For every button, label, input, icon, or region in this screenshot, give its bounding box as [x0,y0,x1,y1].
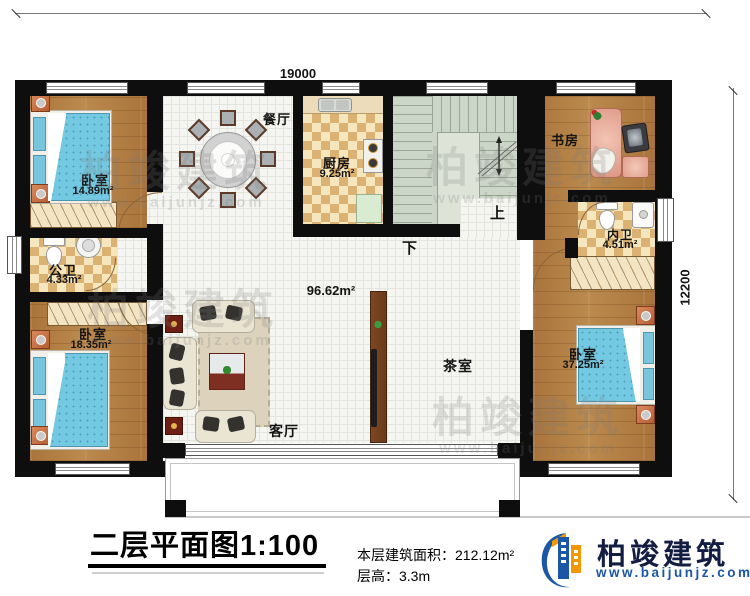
bathroom-sink-basin [82,239,95,252]
floor-area-value: 212.12m² [455,547,514,563]
monitor-screen [627,128,643,147]
stove-burner [368,158,378,168]
desk-plant [590,108,605,124]
window [322,82,360,94]
stove-burner [368,143,378,153]
bedroom-tl-area: 14.89m² [62,185,124,197]
dining-chair [179,151,195,167]
floor-plan-canvas: 19000 12200 上 下 [0,0,750,596]
window [556,82,636,94]
sofa-cushion [169,367,185,385]
wall-outer-right [655,80,672,477]
balcony-guide-line [165,516,750,518]
cabinet-plant [372,318,384,331]
top-dimension-line [15,13,707,14]
floor-area-info: 本层建筑面积：212.12m² [357,545,514,565]
balcony [165,458,520,517]
nightstand [31,330,50,349]
dining-name: 餐厅 [250,109,304,128]
bedroom-br-area: 37.25m² [552,359,614,371]
wall-interior [147,324,163,461]
study-name: 书房 [538,130,592,149]
bedroom-bl-area: 18.35m² [60,339,122,351]
title-underline-light [92,572,324,574]
sofa-cushion [202,416,220,432]
dining-chair [260,151,276,167]
nightstand [636,306,655,325]
sofa-cushion [199,305,217,322]
floor-height-value: 3.3m [399,568,430,584]
wall-study-bath [568,190,655,202]
bed-bl-pillow [33,357,46,395]
dining-chair [220,192,236,208]
refrigerator [356,194,382,223]
floor-height-label: 层高： [357,568,399,584]
stair-direction-arrow [470,134,520,178]
balcony-post [165,500,186,517]
tv-screen [371,349,377,427]
window [187,82,265,94]
wall-outer-left [15,80,30,477]
dining-chair [220,110,236,126]
sliding-door-window [185,444,498,456]
public-bath-area: 4.33m² [38,274,90,286]
window [548,463,640,475]
nightstand [636,405,655,424]
window [657,198,674,242]
wall-balcony-stub [498,443,520,458]
side-table-knob [171,321,177,327]
bed-br-sheet [622,328,640,402]
stair-flight-top [432,96,517,132]
wall-interior [147,96,163,192]
stairs-down-label: 下 [399,237,421,258]
wall-bath-stub [565,238,578,258]
coffee-table-plant [220,363,234,377]
wall-study-left [533,96,545,240]
window [46,82,128,94]
plan-title: 二层平面图1:100 [90,522,319,564]
wardrobe-bedroom-br [570,256,655,290]
side-table-knob [171,423,177,429]
bed-br-pillow [643,332,654,364]
open-area-label: 96.62m² [298,283,364,298]
wall-interior [147,224,163,300]
wardrobe-bedroom-tl [30,202,117,228]
company-website: www.baijunjz.com [596,565,750,580]
bed-br-pillow [643,368,654,400]
right-dimension-label: 12200 [678,258,693,318]
kitchen-area: 9.25m² [310,168,364,180]
kitchen-sink-basin [321,100,334,110]
wall-kitchen-stair-bottom [293,224,460,237]
window [7,236,22,274]
toilet [43,237,65,246]
window [426,82,488,94]
bed-bl-sheet [48,353,65,447]
tea-room-name: 茶室 [433,356,483,376]
stairs-up-label: 上 [488,202,508,223]
wall-stair-right [517,96,533,240]
dining-table-center [221,153,235,167]
top-dimension-label: 19000 [268,66,328,81]
company-logo-icon [536,527,592,591]
ensuite-bath-area: 4.51m² [594,239,646,251]
shower-drain [639,210,648,219]
right-dimension-line [733,88,734,500]
balcony-post [499,500,520,517]
wall-balcony-stub [163,443,185,458]
window [55,463,130,475]
living-name: 客厅 [260,421,308,441]
wall-bedroom-br-left [520,330,533,461]
wall-stair-left [383,96,393,237]
sofa-cushion [169,389,186,407]
floor-height-info: 层高：3.3m [357,566,430,586]
bed-tl-pillow [33,117,46,151]
stair-flight-left [393,96,432,228]
study-desk-return [622,156,649,178]
wall-interior [15,292,147,302]
floor-area-label: 本层建筑面积： [357,547,455,563]
kitchen-sink-basin [336,100,349,110]
sofa-cushion [225,304,244,321]
title-underline [88,564,326,568]
wall-interior [15,228,147,238]
